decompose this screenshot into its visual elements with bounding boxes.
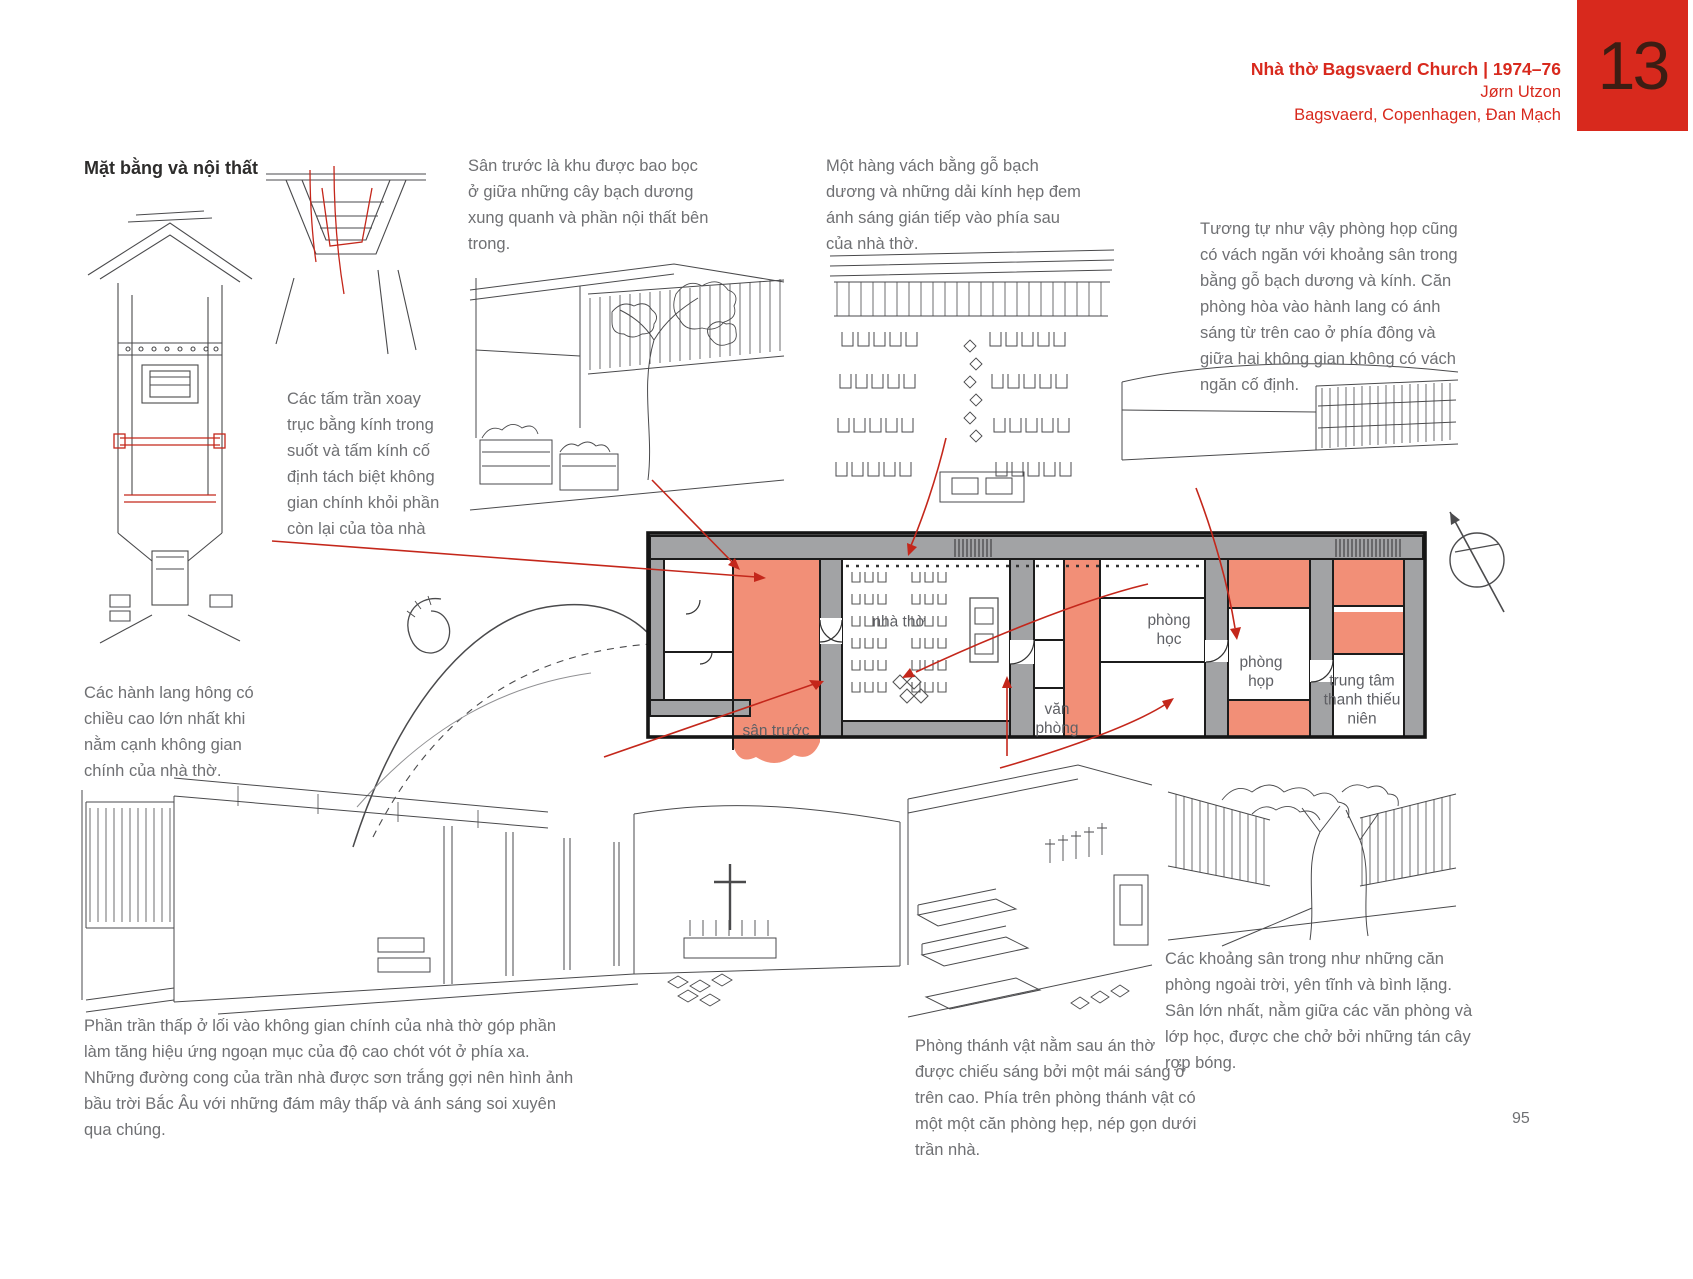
annotation-low-ceiling: Phần trần thấp ở lối vào không gian chín…: [84, 1013, 582, 1143]
plan-label-classroom: phòng học: [1140, 611, 1198, 649]
plan-label-church: nhà thờ: [872, 613, 925, 632]
annotation-sacristy: Phòng thánh vật nằm sau án thờ được chiế…: [915, 1033, 1199, 1163]
plan-label-meeting-room: phòng họp: [1232, 653, 1290, 691]
sketch-sacristy: [900, 755, 1165, 1035]
annotation-ceiling-panels: Các tấm trần xoay trục bằng kính trong s…: [287, 386, 447, 542]
book-page: 13 Nhà thờ Bagsvaerd Church | 1974–76 Jø…: [0, 0, 1693, 1279]
project-location: Bagsvaerd, Copenhagen, Đan Mạch: [1141, 104, 1561, 127]
plan-label-front-yard: sân trước: [742, 722, 809, 741]
annotation-front-yard: Sân trước là khu được bao bọc ở giữa nhữ…: [468, 153, 710, 257]
annotation-meeting-room: Tương tự như vậy phòng họp cũng có vách …: [1200, 216, 1472, 398]
sketch-nave-interior: [78, 770, 908, 1020]
chapter-number-box: 13: [1577, 0, 1688, 131]
section-heading: Mặt bằng và nội thất: [84, 158, 258, 179]
plan-label-youth-center: trung tâm thanh thiếu niên: [1322, 672, 1402, 729]
plan-label-office: văn phòng: [1032, 700, 1082, 738]
project-title: Nhà thờ Bagsvaerd Church | 1974–76: [1141, 58, 1561, 81]
chapter-number: 13: [1598, 32, 1668, 100]
page-number: 95: [1512, 1110, 1530, 1128]
sketch-ceiling-panels: [258, 158, 433, 363]
annotation-timber-screen: Một hàng vách bằng gỗ bạch dương và nhữn…: [826, 153, 1081, 257]
north-arrow-icon: [1450, 512, 1504, 612]
annotation-side-corridors: Các hành lang hông có chiều cao lớn nhất…: [84, 680, 266, 784]
sketch-tall-interior-section: [80, 195, 260, 665]
sketch-church-seating: [822, 240, 1122, 515]
project-architect: Jørn Utzon: [1141, 81, 1561, 104]
project-header: Nhà thờ Bagsvaerd Church | 1974–76 Jørn …: [1141, 58, 1561, 127]
plan-chair-rows: [852, 572, 998, 703]
sketch-shaded-courtyard: [1162, 748, 1462, 948]
sketch-courtyard-trees: [462, 228, 792, 528]
annotation-courtyards: Các khoảng sân trong như những căn phòng…: [1165, 946, 1480, 1076]
